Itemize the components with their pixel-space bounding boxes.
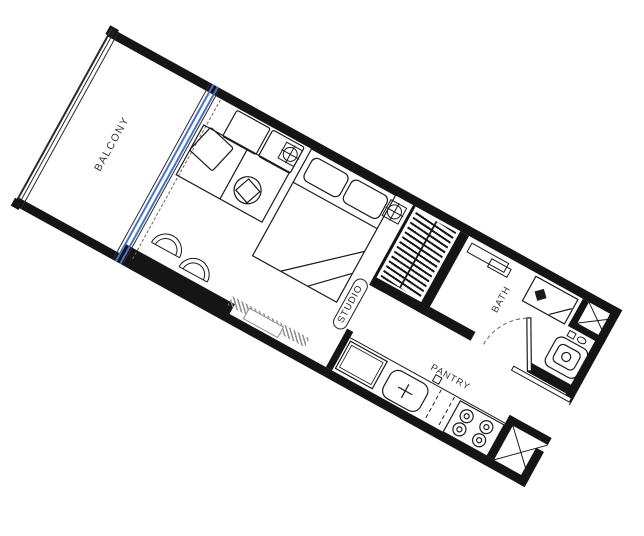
floorplan: BALCONY STUDIO BATH PANTRY — [13, 28, 622, 487]
kitchen-counter — [332, 330, 509, 456]
double-bed — [253, 149, 396, 302]
door-threshold — [512, 366, 572, 402]
cooktop — [443, 401, 504, 456]
entry-door-leaf — [570, 402, 609, 447]
kitchen-sink — [379, 367, 431, 414]
l-sofa — [176, 99, 304, 222]
soap-dish — [567, 330, 576, 339]
entry-door — [543, 401, 618, 478]
toilet — [543, 327, 595, 381]
stool — [179, 253, 215, 282]
fixtures-linework — [13, 28, 622, 487]
sofa-cushion — [190, 127, 234, 171]
bath-door-leaf — [527, 318, 532, 371]
entry-door-swing-arc — [544, 421, 607, 478]
wardrobe-rail — [400, 221, 437, 288]
bath-door — [483, 304, 554, 373]
stool — [151, 228, 187, 257]
ceiling-fan — [381, 198, 408, 225]
service-shaft-bottom — [494, 426, 548, 479]
faucet — [576, 336, 587, 346]
bed-pillow — [302, 156, 350, 199]
side-table — [229, 172, 266, 209]
bathroom-shelf — [466, 243, 513, 277]
refrigerator — [335, 341, 387, 388]
cabinet-dash — [438, 397, 455, 428]
shower-drain — [532, 287, 548, 303]
floorplan-canvas: BALCONY STUDIO BATH PANTRY — [0, 0, 644, 536]
service-shaft-top — [577, 302, 617, 339]
shower — [522, 276, 578, 324]
bath-door-swing-arc — [483, 305, 528, 357]
